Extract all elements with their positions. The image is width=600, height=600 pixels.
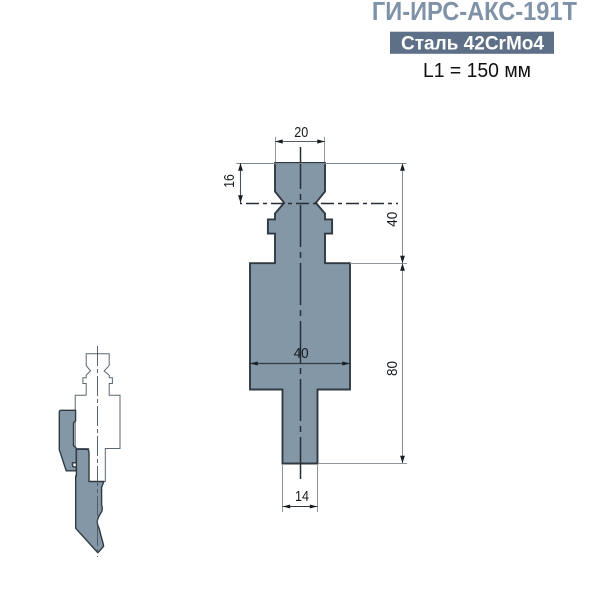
svg-text:L1 = 150 мм: L1 = 150 мм	[423, 59, 531, 82]
svg-text:40: 40	[294, 345, 309, 362]
svg-text:ГИ-ИРС-АКС-191Т: ГИ-ИРС-АКС-191Т	[372, 0, 577, 26]
svg-text:40: 40	[384, 212, 401, 227]
svg-text:16: 16	[221, 174, 238, 188]
svg-text:80: 80	[384, 361, 401, 376]
svg-text:14: 14	[295, 488, 309, 505]
svg-text:Сталь 42CrMo4: Сталь 42CrMo4	[401, 33, 544, 54]
svg-text:20: 20	[294, 124, 308, 141]
